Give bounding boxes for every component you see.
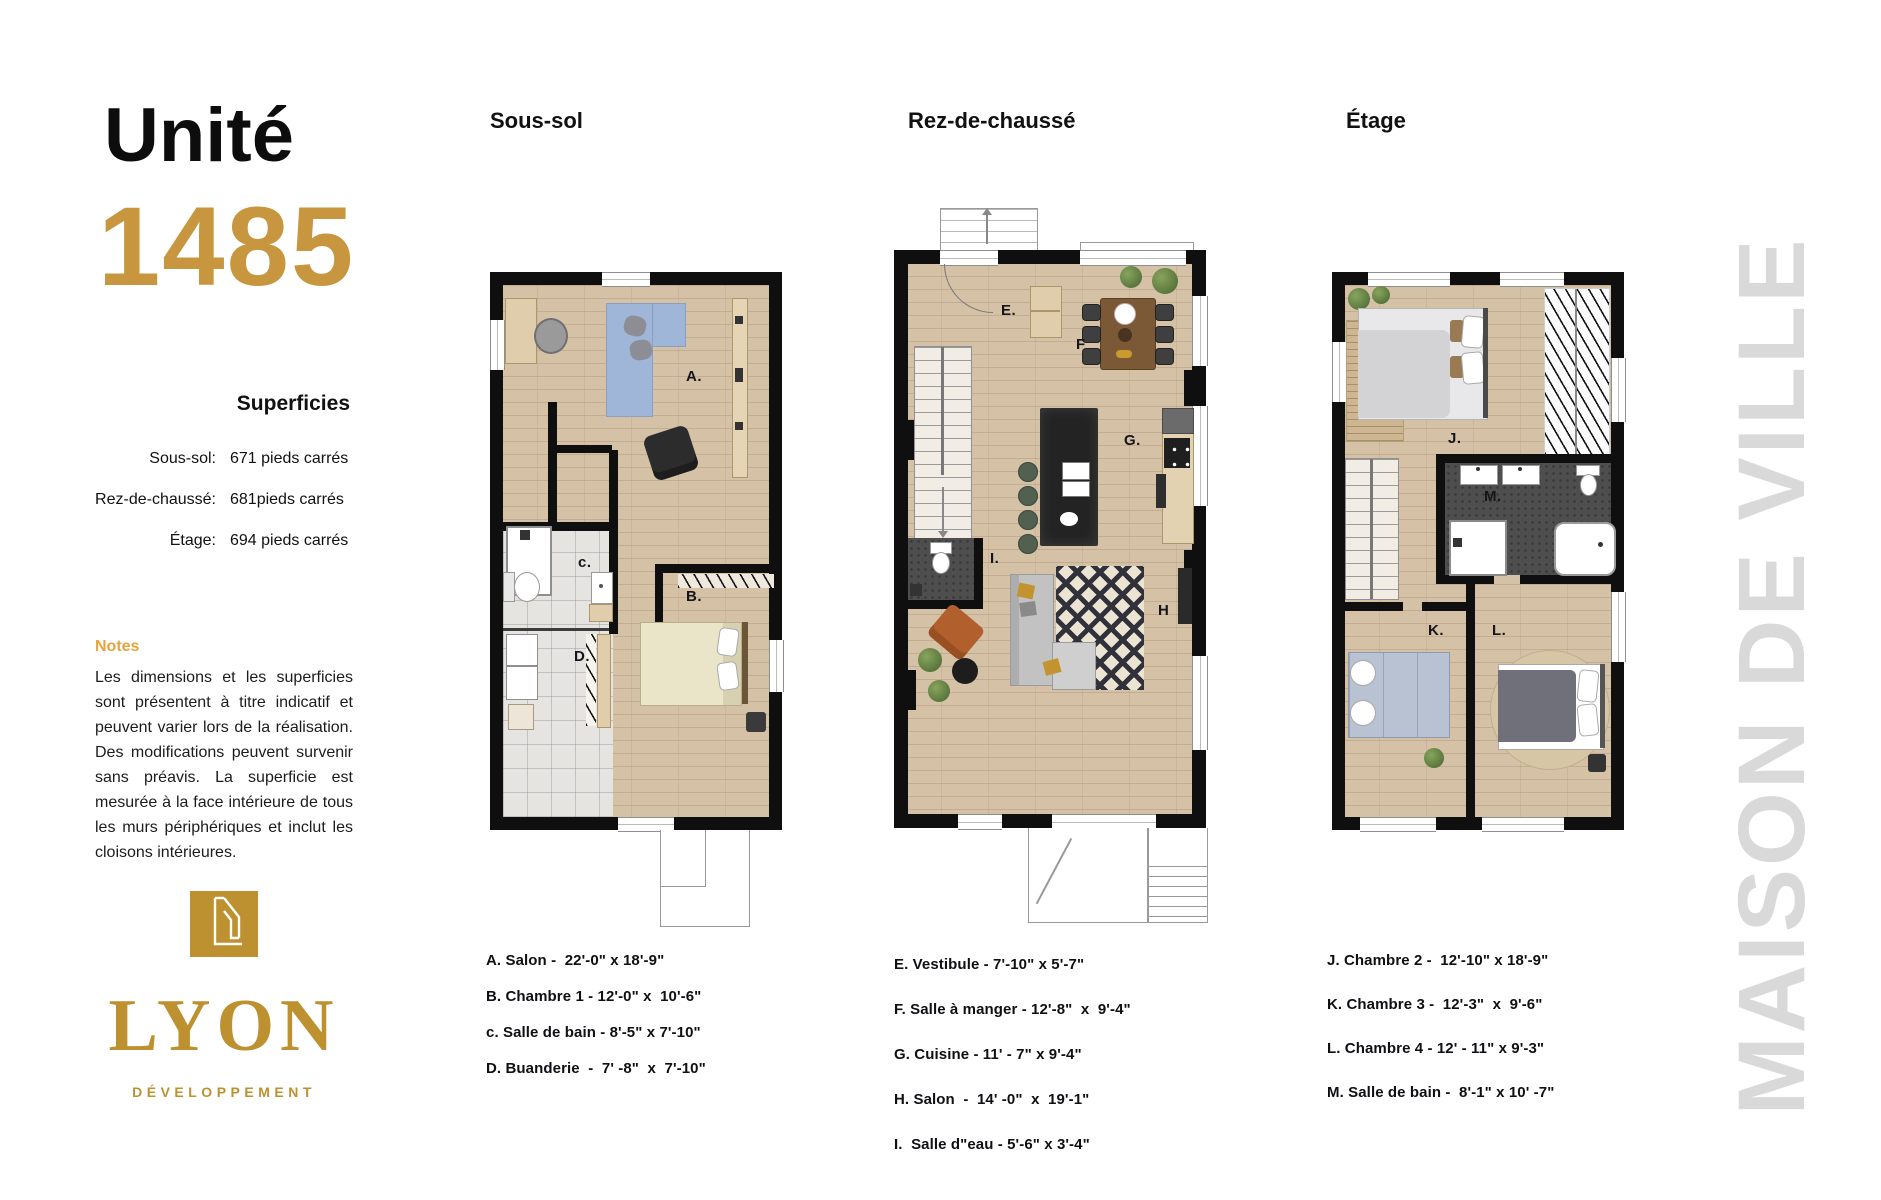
dryer <box>506 666 538 700</box>
desk <box>505 298 537 364</box>
room-label-c: c. <box>578 554 592 571</box>
powder-vanity <box>910 584 922 596</box>
plant <box>928 680 950 702</box>
cushion <box>1019 601 1037 617</box>
room-label-l: L. <box>1492 622 1506 639</box>
wall <box>894 814 1206 828</box>
entry-closet <box>1030 286 1062 338</box>
coffee-table <box>952 658 978 684</box>
unit-number: 1485 <box>98 182 355 311</box>
floorplan-etage: J. K. L. M. <box>1332 272 1624 830</box>
laundry-counter <box>597 634 611 728</box>
wall <box>552 445 612 453</box>
bar-stool <box>1018 534 1038 554</box>
tub-faucet <box>1598 542 1603 547</box>
dining-chair <box>1082 304 1101 321</box>
wall <box>655 564 663 624</box>
refrigerator <box>1162 408 1194 434</box>
cushion <box>1017 582 1036 599</box>
room-label-a: A. <box>686 368 702 385</box>
pillow <box>716 627 740 658</box>
superficies-value: 671 pieds carrés <box>230 450 350 468</box>
superficies-block: Superficies Sous-sol: 671 pieds carrés R… <box>80 392 350 550</box>
legend-item: M. Salle de bain - 8'-1" x 10' -7" <box>1327 1084 1657 1101</box>
floorplan-sous-sol: A. B. c. D. <box>490 272 782 830</box>
window <box>958 814 1002 830</box>
superficies-title: Superficies <box>80 392 350 416</box>
wall <box>894 250 908 828</box>
window <box>602 272 650 287</box>
wall-pier <box>894 670 916 710</box>
plan-title-rez-de-chausse: Rez-de-chaussé <box>908 108 1076 134</box>
deck-brace <box>1036 838 1072 904</box>
plant <box>1372 286 1390 304</box>
wall <box>1520 575 1624 584</box>
brand-name: LYON <box>96 984 352 1069</box>
dining-chair <box>1155 326 1174 343</box>
plant <box>1152 268 1178 294</box>
legend-item: G. Cuisine - 11' - 7" x 9'-4" <box>894 1046 1234 1063</box>
toilet <box>514 572 540 602</box>
legend-item: J. Chambre 2 - 12'-10" x 18'-9" <box>1327 952 1657 969</box>
wall-pier <box>1184 370 1206 406</box>
table-decor <box>1116 350 1132 358</box>
room-label-f: F <box>1076 336 1086 353</box>
notes-title: Notes <box>95 638 139 656</box>
window <box>1192 296 1208 366</box>
window <box>1368 272 1450 287</box>
shelf-item <box>735 422 743 430</box>
shower-valve <box>1453 538 1462 547</box>
bar-stool <box>1018 510 1038 530</box>
headboard <box>742 622 748 704</box>
plan-title-sous-sol: Sous-sol <box>490 108 583 134</box>
window <box>769 640 784 692</box>
plant <box>1348 288 1370 310</box>
legend-item: D. Buanderie - 7' -8" x 7'-10" <box>486 1060 816 1077</box>
brand-subtitle: DÉVELOPPEMENT <box>96 1084 352 1100</box>
wall <box>1436 575 1494 584</box>
duvet <box>1498 670 1576 742</box>
pillow <box>1576 669 1599 703</box>
legend-rez-de-chausse: E. Vestibule - 7'-10" x 5'-7" F. Salle à… <box>894 956 1234 1181</box>
window <box>490 320 505 370</box>
exterior-stair-outline <box>660 830 750 927</box>
notes-body: Les dimensions et les superficies sont p… <box>95 666 353 866</box>
wall <box>503 628 609 631</box>
headboard <box>1600 664 1605 748</box>
island-sink <box>1062 462 1090 480</box>
legend-etage: J. Chambre 2 - 12'-10" x 18'-9" K. Chamb… <box>1327 952 1657 1128</box>
wall <box>1345 602 1403 611</box>
legend-item: c. Salle de bain - 8'-5" x 7'-10" <box>486 1024 816 1041</box>
legend-item: F. Salle à manger - 12'-8" x 9'-4" <box>894 1001 1234 1018</box>
legend-item: K. Chambre 3 - 12'-3" x 9'-6" <box>1327 996 1657 1013</box>
stair-arrow-head <box>982 208 992 215</box>
dining-chair <box>1155 304 1174 321</box>
range-cooktop <box>1164 438 1190 468</box>
superficies-label: Rez-de-chaussé: <box>80 491 230 509</box>
room-label-b: B. <box>686 588 702 605</box>
nightstand <box>1588 754 1606 772</box>
pillow <box>1350 700 1376 726</box>
stair-divider <box>1370 459 1373 599</box>
table-plate <box>1114 303 1136 325</box>
room-label-j: J. <box>1448 430 1462 447</box>
faucet <box>1476 467 1480 471</box>
stair-arrow <box>942 487 944 533</box>
legend-item: H. Salon - 14' -0" x 19'-1" <box>894 1091 1234 1108</box>
wall <box>1466 584 1475 817</box>
room-label-d: D. <box>574 648 590 665</box>
superficies-value: 681pieds carrés <box>230 491 350 509</box>
closet-rack <box>678 574 774 588</box>
wall <box>974 538 983 600</box>
closet-divider <box>1030 310 1060 312</box>
wall <box>1436 454 1445 584</box>
legend-sous-sol: A. Salon - 22'-0" x 18'-9" B. Chambre 1 … <box>486 952 816 1096</box>
lyon-logo-icon <box>190 891 258 957</box>
superficies-value: 694 pieds carrés <box>230 532 350 550</box>
stair-arrow-head <box>938 531 948 538</box>
bar-stool <box>1018 486 1038 506</box>
shower-head <box>520 530 530 540</box>
nightstand <box>746 712 766 732</box>
superficies-label: Sous-sol: <box>80 450 230 468</box>
laundry-sink <box>508 704 534 730</box>
shelf-item <box>735 316 743 324</box>
bathtub <box>1554 522 1616 576</box>
wall <box>1436 454 1624 463</box>
room-label-i: I. <box>990 550 999 567</box>
window <box>1192 656 1208 750</box>
toilet <box>932 552 950 574</box>
plant <box>1120 266 1142 288</box>
wall-pier <box>894 420 916 460</box>
table-centerpiece <box>1118 328 1132 342</box>
vanity-counter <box>589 604 613 622</box>
room-label-g: G. <box>1124 432 1141 449</box>
duvet <box>1358 330 1450 418</box>
window <box>1192 406 1208 506</box>
deck-stairs <box>1149 866 1207 922</box>
exterior-deck-outline <box>1028 828 1208 923</box>
floorplan-rez-de-chausse: E. F G. H I. <box>894 250 1206 828</box>
room-label-h: H <box>1158 602 1169 619</box>
brochure-page: Unité 1485 Superficies Sous-sol: 671 pie… <box>0 0 1881 1200</box>
island-flowers <box>1060 512 1078 526</box>
plant <box>1424 748 1444 768</box>
exterior-stair-notch <box>661 830 706 887</box>
closet-hangers <box>1544 288 1610 456</box>
staircase <box>1345 458 1399 600</box>
island-sink <box>1062 481 1090 497</box>
stair-divider <box>941 347 944 475</box>
pillow <box>1461 351 1486 385</box>
dishwasher <box>1156 474 1166 508</box>
pillow <box>1576 703 1599 737</box>
room-label-e: E. <box>1001 302 1016 319</box>
dining-chair <box>1155 348 1174 365</box>
plant <box>918 648 942 672</box>
shelf-item <box>735 368 743 382</box>
window <box>1611 358 1626 422</box>
wall <box>655 564 782 573</box>
staircase <box>914 346 972 544</box>
vanity-sink <box>591 572 613 604</box>
brand-logo <box>190 891 258 962</box>
unit-title: Unité <box>104 92 294 179</box>
faucet <box>599 584 603 588</box>
superficies-table: Sous-sol: 671 pieds carrés Rez-de-chauss… <box>80 450 350 550</box>
closet-rod <box>1575 289 1577 455</box>
headboard <box>1483 308 1488 418</box>
legend-item: I. Salle d"eau - 5'-6" x 3'-4" <box>894 1136 1234 1153</box>
window <box>1080 250 1186 266</box>
legend-item: E. Vestibule - 7'-10" x 5'-7" <box>894 956 1234 973</box>
window <box>1360 817 1436 832</box>
superficies-label: Étage: <box>80 532 230 550</box>
window <box>1482 817 1564 832</box>
door-swing-arc <box>944 264 993 313</box>
legend-item: A. Salon - 22'-0" x 18'-9" <box>486 952 816 969</box>
wall <box>908 600 983 609</box>
watermark-maison-de-ville: MAISON DE VILLE <box>1716 160 1828 1192</box>
legend-item: L. Chambre 4 - 12' - 11" x 9'-3" <box>1327 1040 1657 1057</box>
desk-chair <box>534 318 568 354</box>
wall <box>609 450 618 530</box>
pillow <box>1350 660 1376 686</box>
shower <box>1449 520 1507 576</box>
plan-title-etage: Étage <box>1346 108 1406 134</box>
window <box>1611 592 1626 662</box>
washer <box>506 634 538 666</box>
tv-console <box>1178 568 1192 624</box>
legend-item: B. Chambre 1 - 12'-0" x 10'-6" <box>486 988 816 1005</box>
faucet <box>1518 467 1522 471</box>
room-label-k: K. <box>1428 622 1444 639</box>
shelf <box>732 298 748 478</box>
wall <box>548 402 557 524</box>
window <box>1500 272 1564 287</box>
pillow <box>1461 315 1486 349</box>
wall <box>769 272 782 830</box>
armchair <box>642 424 700 482</box>
stair-arrow <box>986 212 988 244</box>
bar-stool <box>1018 462 1038 482</box>
window <box>1332 342 1347 402</box>
pillow <box>716 661 740 692</box>
room-label-m: M. <box>1484 488 1502 505</box>
toilet <box>1580 474 1597 496</box>
